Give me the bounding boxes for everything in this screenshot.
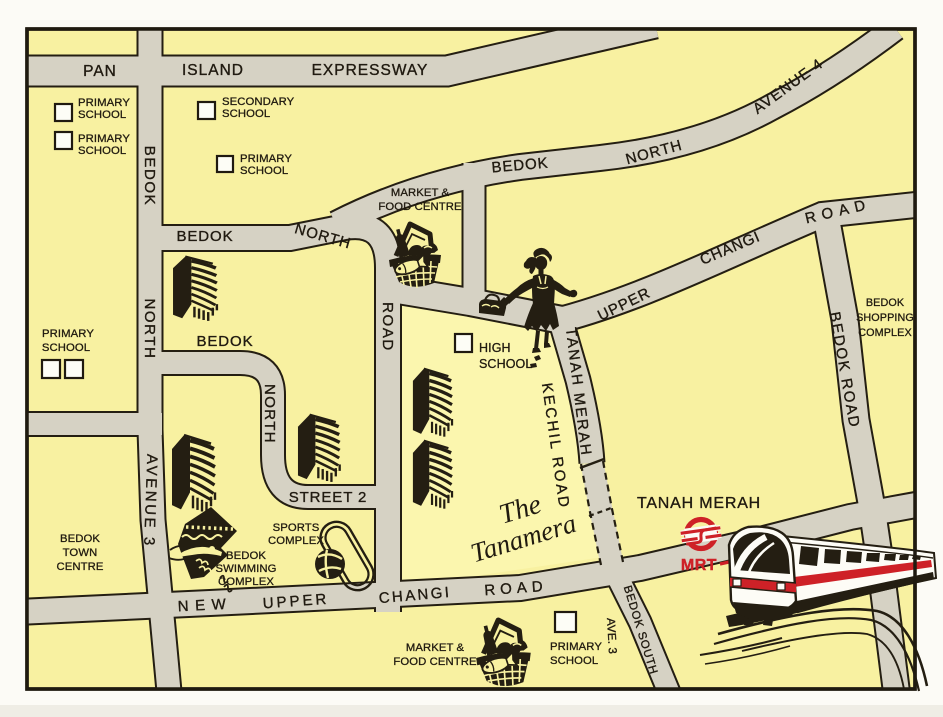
svg-text:BEDOK: BEDOK [60,533,100,545]
svg-text:FOOD CENTRE: FOOD CENTRE [378,201,462,213]
svg-text:FOOD CENTRE: FOOD CENTRE [393,656,477,668]
svg-text:SWIMMING: SWIMMING [215,563,276,575]
svg-text:AVENUE 3: AVENUE 3 [140,454,160,548]
svg-text:HIGH: HIGH [479,341,511,355]
svg-text:SCHOOL: SCHOOL [78,109,126,121]
svg-text:SCHOOL: SCHOOL [42,342,90,354]
svg-text:NEW: NEW [177,596,232,616]
svg-text:TANAH MERAH: TANAH MERAH [637,495,761,512]
svg-text:ISLAND: ISLAND [182,62,244,79]
svg-text:MARKET &: MARKET & [391,187,450,199]
svg-text:STREET 2: STREET 2 [289,489,368,506]
svg-text:SHOPPING: SHOPPING [856,312,914,324]
svg-text:BEDOK: BEDOK [176,228,233,245]
svg-text:CENTRE: CENTRE [56,561,103,573]
svg-text:BEDOK: BEDOK [866,297,905,309]
svg-text:SPORTS: SPORTS [273,522,320,534]
svg-text:PAN: PAN [83,63,117,80]
svg-text:MARKET &: MARKET & [406,642,465,654]
svg-text:NORTH: NORTH [141,298,158,359]
svg-text:SCHOOL: SCHOOL [222,108,270,120]
svg-text:BEDOK: BEDOK [226,550,266,562]
svg-text:BEDOK: BEDOK [141,146,158,207]
svg-text:COMPLEX: COMPLEX [858,327,912,339]
svg-text:COMPLEX: COMPLEX [268,535,324,547]
svg-text:PRIMARY: PRIMARY [78,133,130,145]
svg-text:EXPRESSWAY: EXPRESSWAY [312,62,429,79]
svg-text:SCHOOL: SCHOOL [479,357,532,371]
svg-text:MRT: MRT [681,557,717,574]
svg-text:SCHOOL: SCHOOL [78,145,126,157]
svg-text:PRIMARY: PRIMARY [78,97,130,109]
svg-text:SCHOOL: SCHOOL [550,655,598,667]
svg-text:TOWN: TOWN [63,547,98,559]
svg-text:SECONDARY: SECONDARY [222,96,295,108]
svg-text:NORTH: NORTH [261,384,278,444]
svg-text:PRIMARY: PRIMARY [240,153,292,165]
svg-text:PRIMARY: PRIMARY [550,641,602,653]
svg-text:AVE. 3: AVE. 3 [604,618,618,655]
svg-text:BEDOK: BEDOK [196,333,253,350]
svg-text:SCHOOL: SCHOOL [240,165,288,177]
svg-text:ROAD: ROAD [379,302,396,352]
svg-text:PRIMARY: PRIMARY [42,328,94,340]
